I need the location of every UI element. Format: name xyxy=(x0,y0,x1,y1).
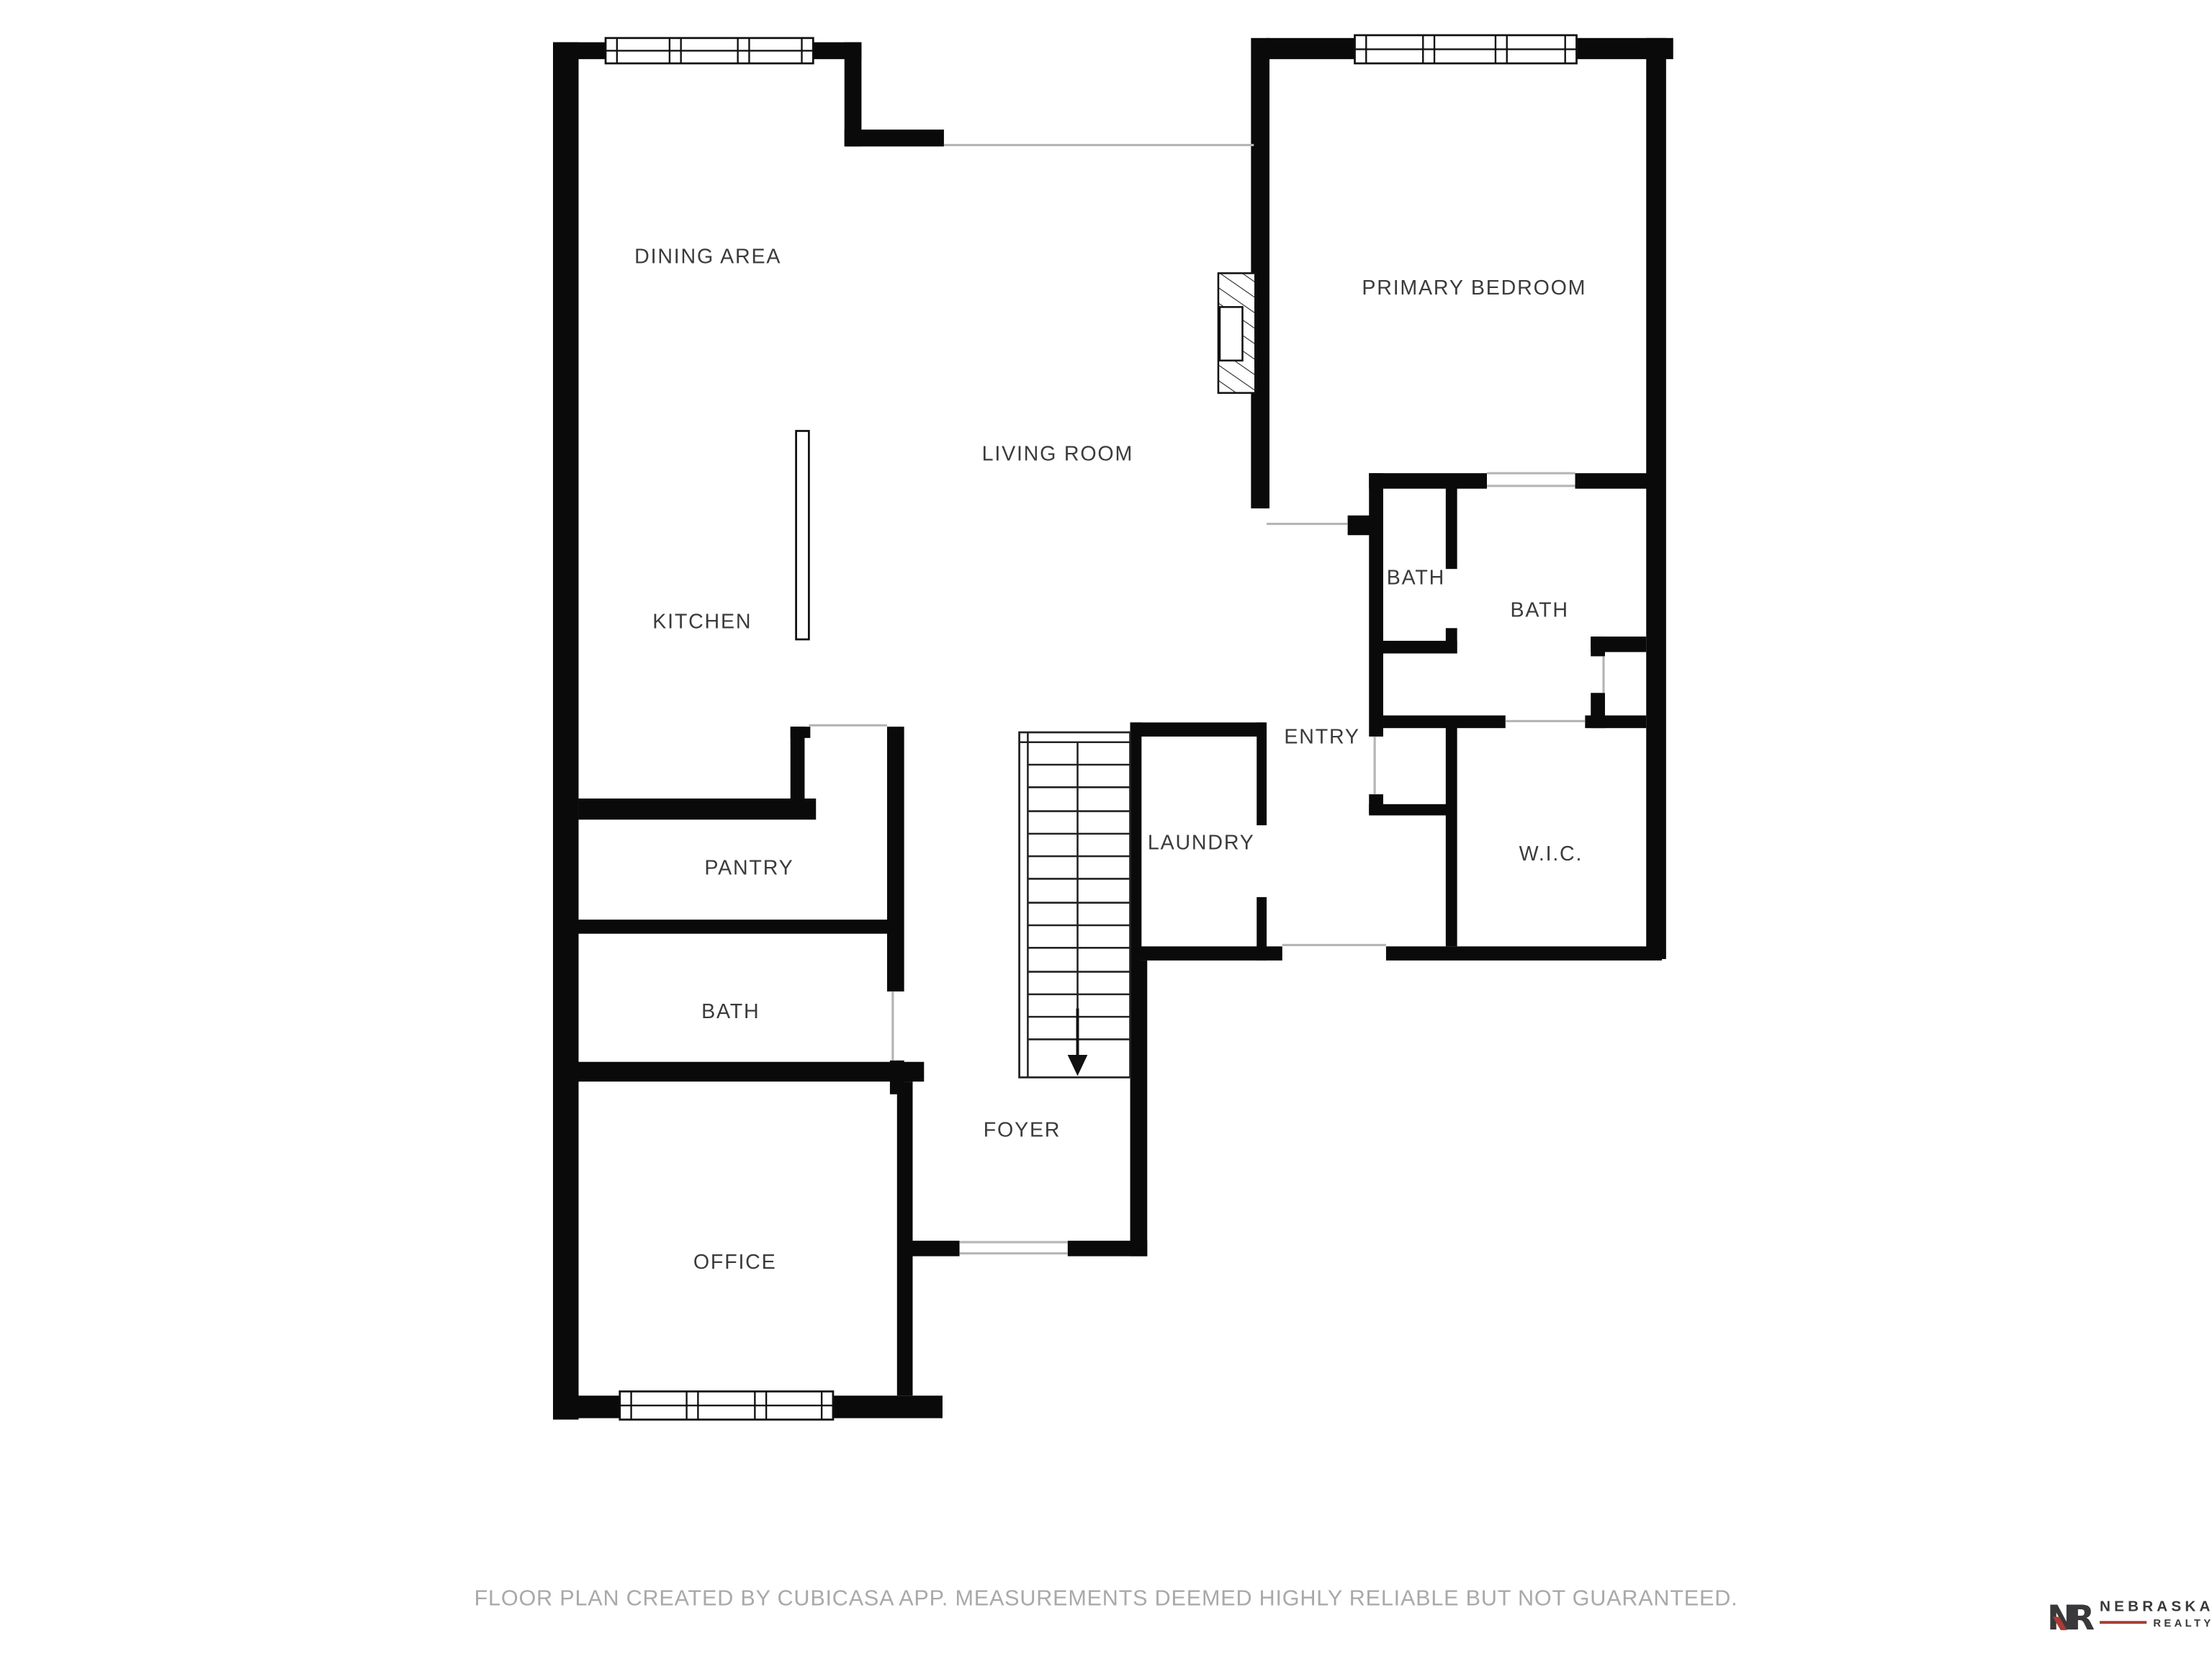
window-symbol xyxy=(1354,35,1576,63)
opening-lines xyxy=(809,145,1604,1257)
room-label-dining-area: DINING AREA xyxy=(634,246,781,269)
room-label-entry: ENTRY xyxy=(1284,727,1359,749)
floor-plan-drawing xyxy=(0,0,2212,1659)
room-label-bath-primary: BATH xyxy=(1510,600,1568,622)
room-label-foyer: FOYER xyxy=(984,1120,1061,1142)
fireplace-symbol xyxy=(1218,273,1255,392)
room-label-wic: W.I.C. xyxy=(1519,844,1583,866)
svg-text:R: R xyxy=(2069,1600,2095,1635)
walls xyxy=(553,38,1673,1420)
room-label-bath-upper: BATH xyxy=(1387,567,1445,590)
logo-suffix-text: REALTY xyxy=(2153,1617,2212,1628)
logo-divider-line xyxy=(2100,1622,2146,1624)
nebraska-realty-logo: N R NEBRASKA REALTY xyxy=(2049,1600,2212,1635)
room-label-bath-lower: BATH xyxy=(701,1002,760,1024)
disclaimer-text: FLOOR PLAN CREATED BY CUBICASA APP. MEAS… xyxy=(475,1587,1738,1612)
room-label-kitchen: KITCHEN xyxy=(652,611,752,634)
room-label-living-room: LIVING ROOM xyxy=(982,444,1133,466)
logo-brand-text: NEBRASKA xyxy=(2100,1600,2212,1617)
nebraska-realty-monogram-icon: N R xyxy=(2049,1600,2094,1635)
floor-plan: DINING AREA PRIMARY BEDROOM LIVING ROOM … xyxy=(0,0,2212,1659)
room-label-office: OFFICE xyxy=(693,1252,777,1274)
kitchen-island xyxy=(796,431,809,639)
room-label-laundry: LAUNDRY xyxy=(1148,832,1255,855)
room-label-primary-bedroom: PRIMARY BEDROOM xyxy=(1362,277,1586,300)
window-symbol xyxy=(606,38,813,63)
staircase-symbol xyxy=(1020,732,1130,1077)
floor-plan-page: DINING AREA PRIMARY BEDROOM LIVING ROOM … xyxy=(0,0,2212,1659)
room-label-pantry: PANTRY xyxy=(704,858,793,880)
window-symbol xyxy=(620,1391,833,1419)
